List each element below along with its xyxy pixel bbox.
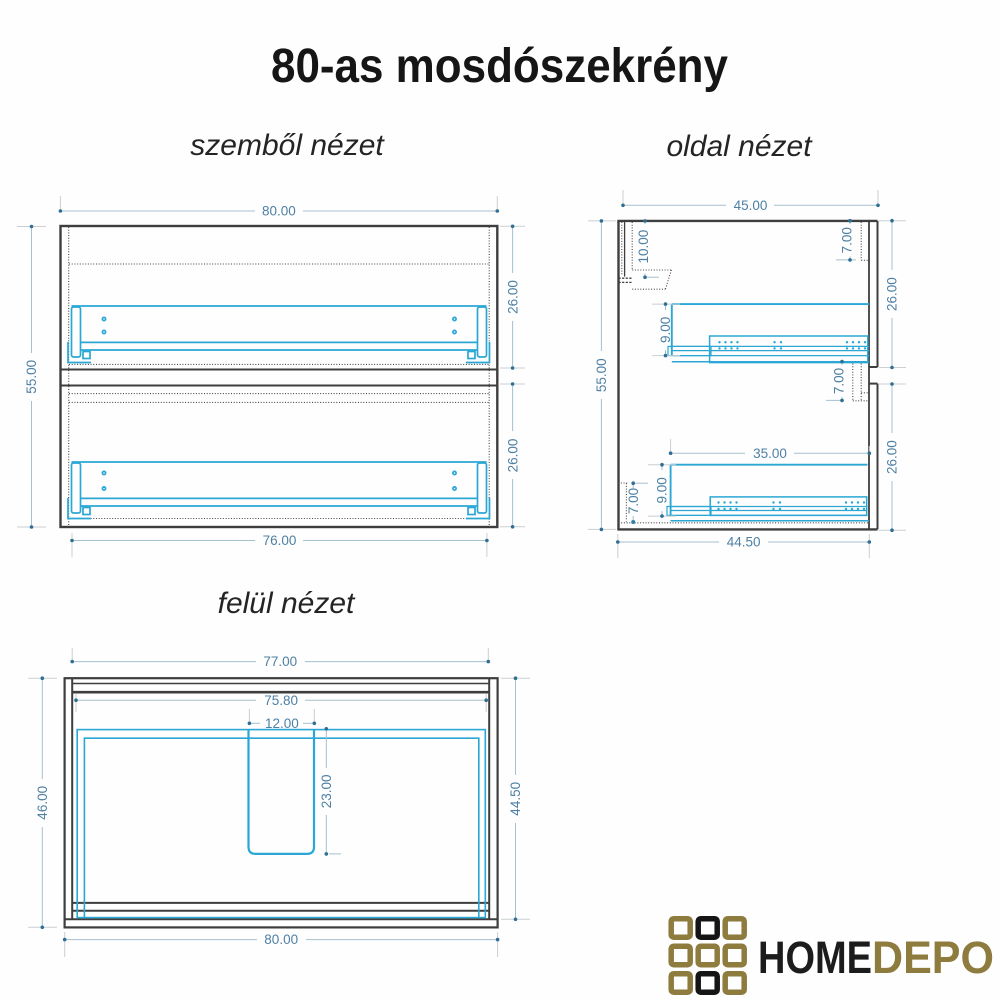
svg-text:7.00: 7.00 (840, 227, 855, 253)
svg-text:23.00: 23.00 (319, 775, 334, 809)
svg-text:80-as mosdószekrény: 80-as mosdószekrény (271, 40, 728, 93)
svg-text:26.00: 26.00 (505, 439, 520, 473)
svg-text:75.80: 75.80 (264, 693, 298, 708)
svg-text:10.00: 10.00 (636, 230, 651, 264)
svg-text:46.00: 46.00 (35, 786, 50, 820)
svg-text:55.00: 55.00 (594, 358, 609, 392)
svg-text:80.00: 80.00 (264, 932, 298, 947)
svg-text:oldal nézet: oldal nézet (666, 130, 813, 163)
svg-text:12.00: 12.00 (265, 716, 299, 731)
svg-text:26.00: 26.00 (505, 280, 520, 314)
svg-text:7.00: 7.00 (626, 488, 641, 514)
svg-text:DEPO: DEPO (872, 932, 994, 983)
svg-text:77.00: 77.00 (263, 654, 297, 669)
svg-text:26.00: 26.00 (885, 440, 900, 474)
svg-text:felül nézet: felül nézet (218, 587, 356, 620)
svg-text:35.00: 35.00 (753, 446, 787, 461)
svg-text:HOME: HOME (758, 932, 872, 983)
svg-text:45.00: 45.00 (734, 198, 768, 213)
svg-text:44.50: 44.50 (727, 535, 761, 550)
svg-text:9.00: 9.00 (655, 477, 670, 503)
svg-text:szemből nézet: szemből nézet (190, 129, 385, 162)
svg-text:7.00: 7.00 (832, 368, 847, 394)
svg-text:55.00: 55.00 (24, 360, 39, 394)
svg-text:26.00: 26.00 (885, 277, 900, 311)
svg-text:76.00: 76.00 (263, 533, 297, 548)
svg-text:80.00: 80.00 (262, 204, 296, 219)
svg-text:9.00: 9.00 (658, 317, 673, 343)
svg-text:44.50: 44.50 (508, 782, 523, 816)
